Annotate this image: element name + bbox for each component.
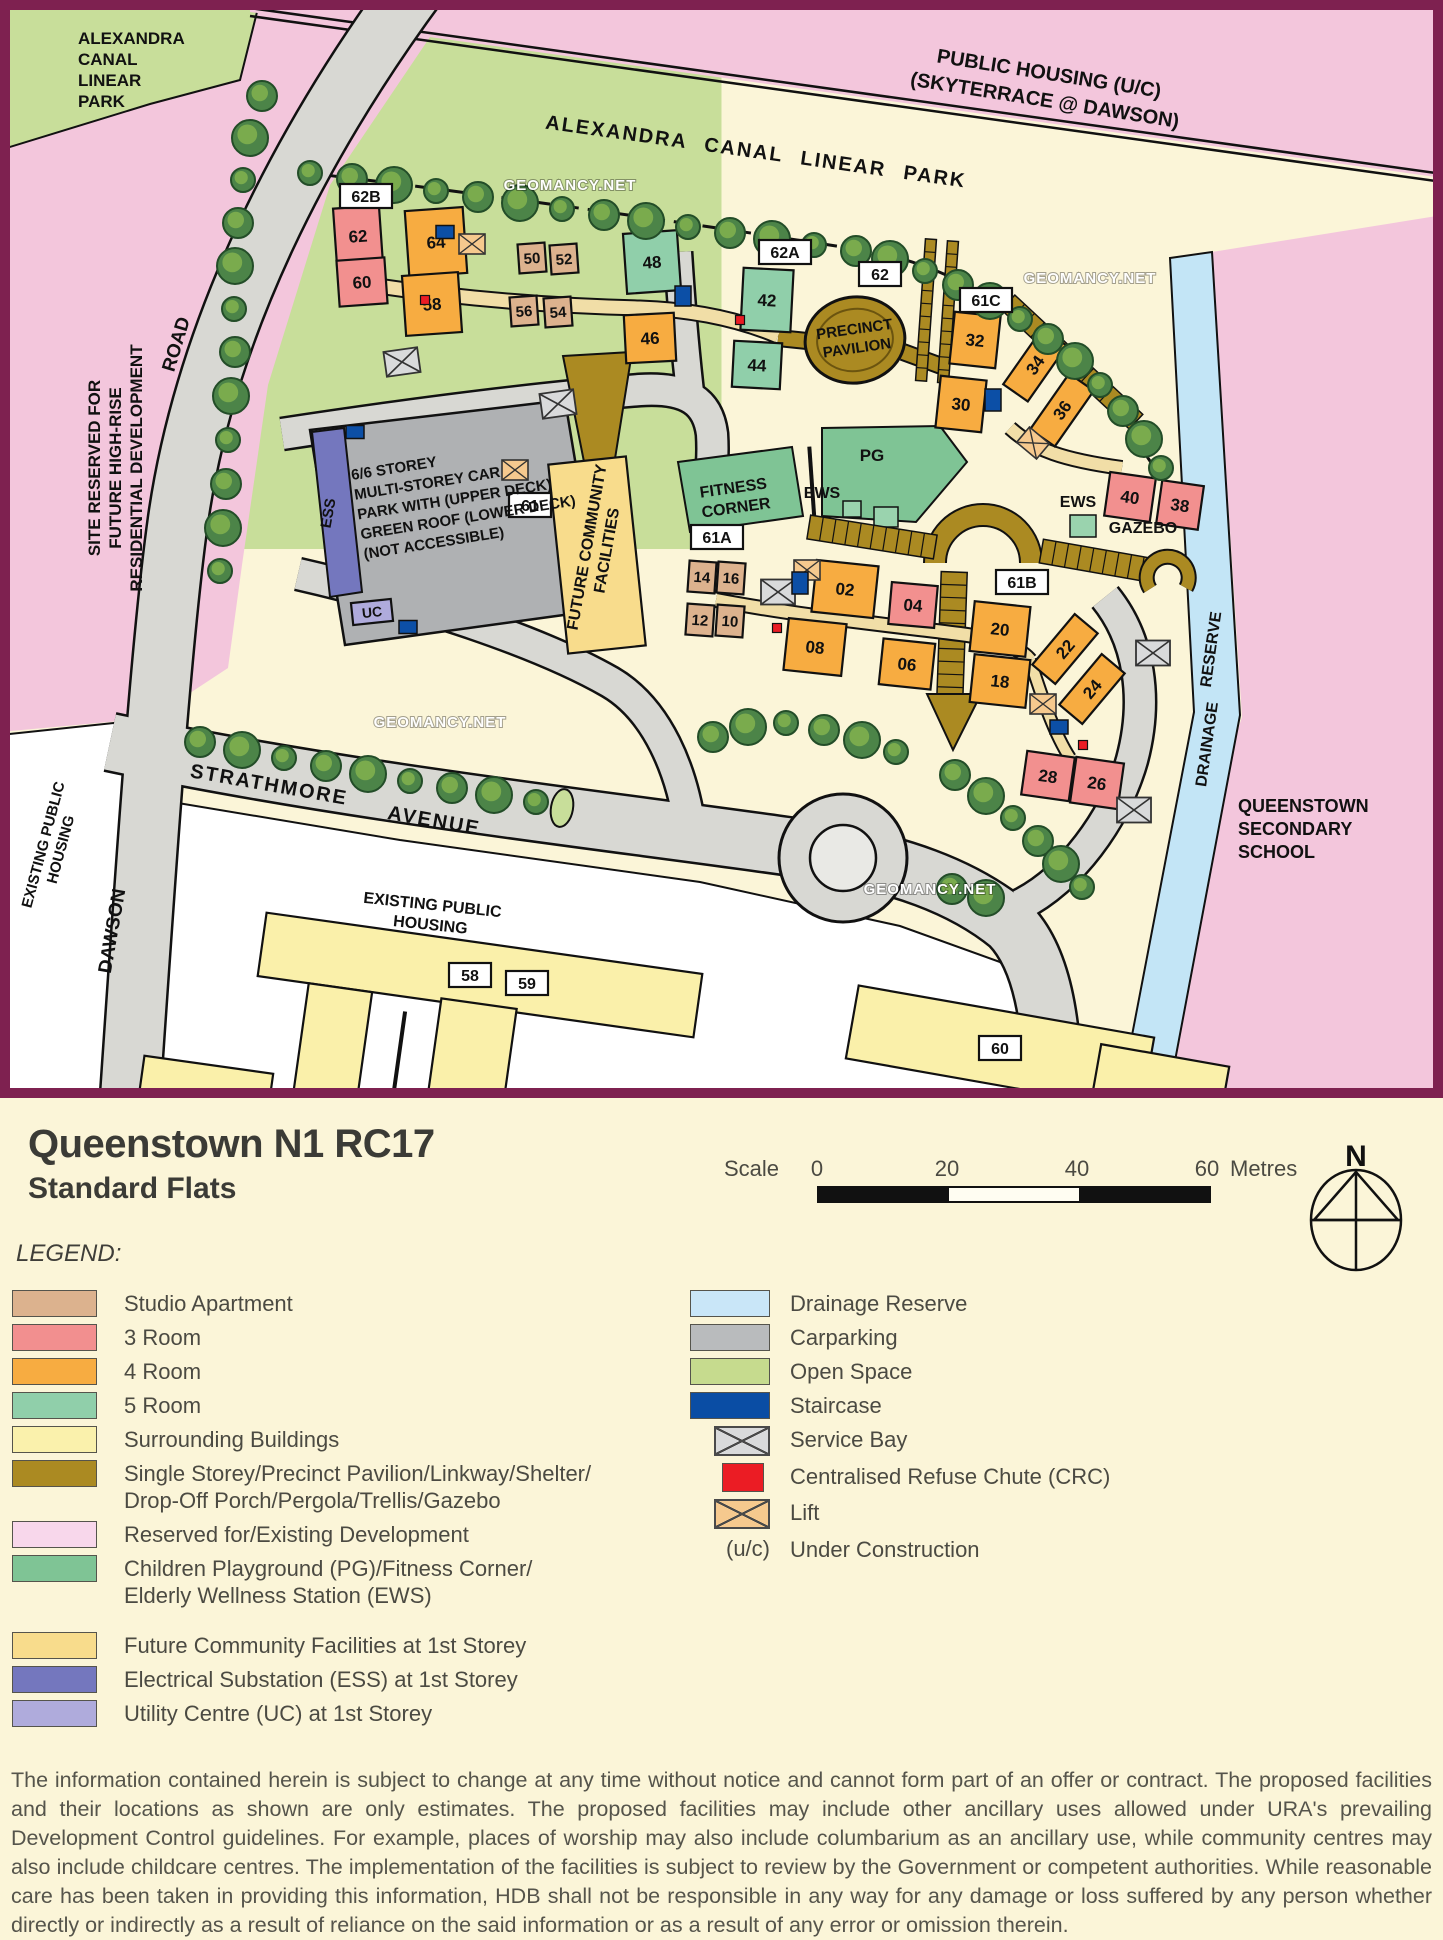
tree-icon <box>232 120 268 156</box>
tree-icon <box>715 218 745 248</box>
tree-icon <box>298 161 322 185</box>
label-box-60: 60 <box>979 1036 1021 1060</box>
block-label: 08 <box>805 637 826 658</box>
tree-icon <box>216 428 240 452</box>
tree-icon <box>217 248 253 284</box>
tree-icon <box>940 760 970 790</box>
tree-icon <box>1149 456 1173 480</box>
tree-icon <box>774 711 798 735</box>
map-text: EWS <box>1060 494 1097 511</box>
tree-inner <box>1005 809 1018 822</box>
tree-inner <box>888 743 901 756</box>
block-42: 42 <box>740 268 793 333</box>
label-box-text: 62 <box>871 267 889 284</box>
tree-icon <box>213 378 249 414</box>
block-30: 30 <box>935 376 986 433</box>
legend-item: Studio Apartment <box>12 1290 612 1317</box>
block-label: 06 <box>897 654 918 675</box>
label-box-text: 58 <box>461 968 479 985</box>
tree-inner <box>402 772 415 785</box>
watermark-text: GEOMANCY.NET <box>1024 270 1157 287</box>
legend-item: Reserved for/Existing Development <box>12 1521 612 1548</box>
tree-inner <box>594 204 611 221</box>
tree-icon <box>211 469 241 499</box>
tree-inner <box>222 253 242 273</box>
block-label: 18 <box>990 671 1011 692</box>
block-label: 30 <box>951 394 972 415</box>
block-04: 04 <box>888 582 937 628</box>
block-14: 14 <box>687 561 716 594</box>
tree-inner <box>225 341 242 358</box>
scale-tick: 60 <box>1195 1156 1219 1182</box>
legend-swatch <box>12 1392 97 1419</box>
staircase-icon <box>346 426 364 439</box>
legend-item: 4 Room <box>12 1358 612 1385</box>
block-label: 52 <box>555 251 573 269</box>
tree-icon <box>628 203 664 239</box>
tree-icon <box>676 215 700 239</box>
legend-swatch <box>12 1700 97 1727</box>
label-box-62A: 62A <box>759 240 811 264</box>
block-label: 10 <box>721 613 739 631</box>
block-label: UC <box>361 603 383 621</box>
block-48: 48 <box>623 230 681 294</box>
north-arrow-icon: N <box>1300 1136 1412 1276</box>
legend-swatch <box>690 1392 770 1419</box>
tree-icon <box>1070 875 1094 899</box>
tree-inner <box>216 473 233 490</box>
rung <box>943 305 954 306</box>
scale-label: Scale <box>724 1156 779 1182</box>
block-60: 60 <box>336 257 387 306</box>
legend-label: Centralised Refuse Chute (CRC) <box>790 1463 1110 1490</box>
legend-item: Carparking <box>690 1324 1390 1351</box>
tree-inner <box>468 186 485 203</box>
rung <box>939 357 950 358</box>
legend-swatch <box>690 1358 770 1385</box>
ews-label: EWS <box>804 485 841 502</box>
block-label: 48 <box>642 252 662 272</box>
legend-item: Utility Centre (UC) at 1st Storey <box>12 1700 612 1727</box>
scale-bar <box>817 1186 1211 1203</box>
legend-swatch <box>690 1324 770 1351</box>
tree-icon <box>524 790 548 814</box>
tree-icon <box>208 559 232 583</box>
tree-inner <box>210 515 230 535</box>
north-label: N <box>1345 1140 1367 1173</box>
tree-inner <box>680 218 693 231</box>
tree-inner <box>481 782 501 802</box>
site-plan-map: UC62646058505256544846424432303436403802… <box>0 0 1443 1098</box>
legend-swatch <box>12 1666 97 1693</box>
tree-inner <box>735 714 755 734</box>
map-text: PG <box>860 446 885 465</box>
legend-item: 5 Room <box>12 1392 612 1419</box>
tree-icon <box>1033 324 1063 354</box>
block-label: 42 <box>757 291 777 311</box>
rung <box>917 355 928 356</box>
ews-area <box>874 507 898 527</box>
tree-inner <box>237 125 257 145</box>
block-label: 44 <box>747 356 767 376</box>
tree-icon <box>424 179 448 203</box>
staircase-icon <box>1050 720 1068 734</box>
block-64: 64 <box>405 207 467 277</box>
tree-inner <box>917 262 930 275</box>
tree-inner <box>846 240 863 257</box>
label-box-text: 61A <box>702 530 732 547</box>
watermark-text: GEOMANCY.NET <box>504 177 637 194</box>
label-box-text: 59 <box>518 976 536 993</box>
tree-inner <box>973 783 993 803</box>
tree-inner <box>226 300 239 313</box>
service-bay-icon <box>539 389 576 418</box>
legend-item: Open Space <box>690 1358 1390 1385</box>
legend-label: Single Storey/Precinct Pavilion/Linkway/… <box>124 1460 591 1514</box>
legend-label: Children Playground (PG)/Fitness Corner/… <box>124 1555 532 1609</box>
scale-tick: 40 <box>1065 1156 1089 1182</box>
tree-icon <box>1043 846 1079 882</box>
legend-item: Lift <box>690 1499 1390 1529</box>
legend-item: Staircase <box>690 1392 1390 1419</box>
scale-segment <box>819 1188 949 1201</box>
block-06: 06 <box>879 638 936 689</box>
page-subtitle: Standard Flats <box>28 1172 236 1206</box>
legend-label: Surrounding Buildings <box>124 1426 339 1453</box>
staircase-icon <box>792 572 808 594</box>
block-12: 12 <box>685 604 714 637</box>
rung <box>922 290 933 291</box>
block-16: 16 <box>716 562 745 595</box>
tree-inner <box>1153 459 1166 472</box>
legend-label: 3 Room <box>124 1324 201 1351</box>
legend-swatch <box>12 1460 97 1487</box>
label-box-text: 61C <box>971 293 1001 310</box>
rung <box>942 318 953 319</box>
ews-label: EWS <box>1060 494 1097 511</box>
legend-item: (u/c)Under Construction <box>690 1536 1390 1563</box>
rung <box>925 252 936 253</box>
tree-inner <box>1074 878 1087 891</box>
tree-inner <box>190 731 207 748</box>
rung <box>921 303 932 304</box>
tree-icon <box>222 297 246 321</box>
tree-inner <box>428 182 441 195</box>
legend-label: Utility Centre (UC) at 1st Storey <box>124 1700 432 1727</box>
legend-label: Service Bay <box>790 1426 907 1453</box>
block-28: 28 <box>1021 751 1075 801</box>
tree-icon <box>550 197 574 221</box>
block-26: 26 <box>1070 757 1124 809</box>
block-40: 40 <box>1104 472 1156 522</box>
legend-swatch <box>714 1426 770 1456</box>
tree-icon <box>1126 421 1162 457</box>
tree-inner <box>252 85 269 102</box>
rung <box>947 254 958 255</box>
block-label: 56 <box>515 303 533 321</box>
staircase-icon <box>985 389 1001 411</box>
label-box-61A: 61A <box>691 525 743 549</box>
disclaimer-text: The information contained herein is subj… <box>11 1766 1432 1940</box>
legend-swatch <box>12 1632 97 1659</box>
block-label: 14 <box>693 569 711 587</box>
legend-swatch <box>12 1521 97 1548</box>
block-label: 02 <box>835 579 856 600</box>
scale-segment <box>949 1188 1079 1201</box>
tree-icon <box>589 200 619 230</box>
scale-ticks: 0204060 <box>817 1156 1207 1182</box>
tree-inner <box>814 719 831 736</box>
tree-inner <box>229 737 249 757</box>
tree-icon <box>844 722 880 758</box>
legend-item: Surrounding Buildings <box>12 1426 612 1453</box>
legend-column-left: Studio Apartment3 Room4 Room5 RoomSurrou… <box>12 1290 612 1734</box>
block-52: 52 <box>550 244 579 275</box>
label-box-text: 60 <box>991 1041 1009 1058</box>
pg-label: PG <box>860 446 885 465</box>
legend-label: Studio Apartment <box>124 1290 293 1317</box>
block-44: 44 <box>732 341 782 389</box>
block-label: 50 <box>523 250 541 268</box>
tree-icon <box>884 740 908 764</box>
staircase-icon <box>436 226 454 239</box>
tree-inner <box>218 383 238 403</box>
block-label: 28 <box>1037 766 1058 787</box>
label-box-62: 62 <box>859 262 901 286</box>
crc-icon <box>1079 741 1088 750</box>
block-label: 26 <box>1086 773 1107 794</box>
lift-icon <box>502 460 528 480</box>
legend-uc-prefix: (u/c) <box>690 1536 770 1562</box>
block-02: 02 <box>811 560 878 618</box>
legend-swatch <box>722 1463 764 1492</box>
block-08: 08 <box>783 618 846 676</box>
label-box-text: 62B <box>351 189 380 206</box>
tree-icon <box>311 751 341 781</box>
label-box-62B: 62B <box>340 184 392 208</box>
legend-column-right: Drainage ReserveCarparkingOpen SpaceStai… <box>690 1290 1390 1570</box>
watermark-text: GEOMANCY.NET <box>864 881 997 898</box>
scale-tick: 20 <box>935 1156 959 1182</box>
tree-icon <box>1057 343 1093 379</box>
lift-icon <box>459 234 485 254</box>
tree-inner <box>276 749 289 762</box>
legend-item: Future Community Facilities at 1st Store… <box>12 1632 612 1659</box>
tree-inner <box>945 764 962 781</box>
tree-icon <box>220 337 250 367</box>
tree-icon <box>463 182 493 212</box>
scale-tick: 0 <box>811 1156 823 1182</box>
legend-label: 5 Room <box>124 1392 201 1419</box>
legend-item: Drainage Reserve <box>690 1290 1390 1317</box>
label-box-text: 62A <box>770 245 800 262</box>
tree-inner <box>1113 400 1130 417</box>
tree-inner <box>703 726 720 743</box>
label-box-61B: 61B <box>996 570 1048 594</box>
scale-unit: Metres <box>1230 1156 1297 1182</box>
legend-item: Single Storey/Precinct Pavilion/Linkway/… <box>12 1460 612 1514</box>
block-label: 12 <box>691 612 709 630</box>
legend-swatch <box>12 1324 97 1351</box>
legend-label: Carparking <box>790 1324 898 1351</box>
block-label: 40 <box>1119 487 1140 508</box>
tree-inner <box>849 727 869 747</box>
block-label: 62 <box>348 226 368 246</box>
staircase-icon <box>399 621 417 634</box>
legend-item: Centralised Refuse Chute (CRC) <box>690 1463 1390 1492</box>
crc-icon <box>421 296 430 305</box>
watermark-text: GEOMANCY.NET <box>374 714 507 731</box>
label-box-58: 58 <box>449 963 491 987</box>
tree-inner <box>355 761 375 781</box>
block-50: 50 <box>518 243 547 274</box>
legend-swatch <box>690 1290 770 1317</box>
service-bay-icon <box>761 580 795 605</box>
legend-swatch <box>12 1426 97 1453</box>
label-box-61C: 61C <box>960 288 1012 312</box>
tree-inner <box>1028 830 1045 847</box>
legend-label: Electrical Substation (ESS) at 1st Store… <box>124 1666 518 1693</box>
block-label: 04 <box>903 595 924 616</box>
tree-icon <box>231 168 255 192</box>
service-bay-icon <box>1117 798 1151 823</box>
legend-label: Reserved for/Existing Development <box>124 1521 469 1548</box>
tree-inner <box>1062 348 1082 368</box>
block-32: 32 <box>949 312 1000 369</box>
pergola-arc <box>935 515 1031 563</box>
tree-inner <box>342 168 359 185</box>
tree-inner <box>720 222 737 239</box>
crc-icon <box>773 624 782 633</box>
block-label: 38 <box>1169 495 1190 516</box>
rung <box>938 370 949 371</box>
block-58: 58 <box>402 272 462 336</box>
legend-label: Under Construction <box>790 1536 980 1563</box>
block-18: 18 <box>970 654 1031 708</box>
tree-icon <box>913 259 937 283</box>
rung <box>918 342 929 343</box>
tree-icon <box>1001 806 1025 830</box>
block-46: 46 <box>624 313 676 364</box>
tree-inner <box>1048 851 1068 871</box>
block-label: 54 <box>549 304 567 322</box>
rung <box>940 344 951 345</box>
legend-item: Service Bay <box>690 1426 1390 1456</box>
rung <box>920 316 931 317</box>
tree-inner <box>554 200 567 213</box>
staircase-icon <box>675 286 691 306</box>
block-UC: UC <box>351 599 393 625</box>
tree-inner <box>235 171 248 184</box>
legend-item: 3 Room <box>12 1324 612 1351</box>
tree-inner <box>1012 310 1025 323</box>
block-label: 32 <box>965 330 986 351</box>
site-plan-svg: UC62646058505256544846424432303436403802… <box>0 0 1443 1098</box>
tree-icon <box>350 756 386 792</box>
gazebo-label: GAZEBO <box>1109 520 1177 537</box>
ews-area <box>843 501 861 517</box>
service-bay-icon <box>383 347 420 376</box>
legend-swatch <box>714 1499 770 1529</box>
tree-icon <box>730 709 766 745</box>
map-text: EWS <box>804 485 841 502</box>
legend-swatch <box>12 1290 97 1317</box>
tree-inner <box>220 431 233 444</box>
block-label: 20 <box>990 619 1011 640</box>
crc-icon <box>736 316 745 325</box>
linkway <box>778 338 807 341</box>
tree-icon <box>476 777 512 813</box>
block-label: 16 <box>722 570 740 588</box>
tree-icon <box>205 510 241 546</box>
ews-area <box>1070 515 1096 537</box>
legend-title: LEGEND: <box>16 1240 121 1268</box>
legend-label: Staircase <box>790 1392 882 1419</box>
legend-label: Future Community Facilities at 1st Store… <box>124 1632 526 1659</box>
tree-icon <box>968 778 1004 814</box>
block-label: 60 <box>352 272 372 292</box>
tree-inner <box>778 714 791 727</box>
block-10: 10 <box>715 605 744 638</box>
label-box-text: 61B <box>1007 575 1036 592</box>
tree-inner <box>442 777 459 794</box>
tree-inner <box>528 793 541 806</box>
tree-icon <box>185 727 215 757</box>
tree-icon <box>1088 373 1112 397</box>
tree-inner <box>302 164 315 177</box>
block-label: 46 <box>640 329 660 349</box>
legend-item: Electrical Substation (ESS) at 1st Store… <box>12 1666 612 1693</box>
legend-label: Drainage Reserve <box>790 1290 967 1317</box>
tree-inner <box>1038 328 1055 345</box>
block-20: 20 <box>970 601 1031 657</box>
legend-label: 4 Room <box>124 1358 201 1385</box>
legend-item: Children Playground (PG)/Fitness Corner/… <box>12 1555 612 1609</box>
lift-icon <box>1030 694 1056 714</box>
page: { "palette":{ "green":"#C8DE9A","pink":"… <box>0 0 1443 1904</box>
tree-icon <box>223 208 253 238</box>
tree-inner <box>633 208 653 228</box>
tree-icon <box>437 773 467 803</box>
tree-inner <box>228 212 245 229</box>
gazebo-structure <box>1147 557 1189 589</box>
tree-icon <box>698 722 728 752</box>
tree-icon <box>809 715 839 745</box>
tree-inner <box>1092 376 1105 389</box>
legend-swatch <box>12 1358 97 1385</box>
tree-inner <box>316 755 333 772</box>
legend-label: Lift <box>790 1499 819 1526</box>
tree-icon <box>1108 396 1138 426</box>
rung <box>919 329 930 330</box>
legend-label: Open Space <box>790 1358 912 1385</box>
block-56: 56 <box>510 296 539 327</box>
rung <box>946 267 957 268</box>
tree-inner <box>212 562 225 575</box>
tree-icon <box>398 769 422 793</box>
tree-icon <box>247 81 277 111</box>
label-box-59: 59 <box>506 971 548 995</box>
page-title: Queenstown N1 RC17 <box>28 1122 435 1167</box>
service-bay-icon <box>1136 641 1170 666</box>
rung <box>941 331 952 332</box>
map-text: GAZEBO <box>1109 520 1177 537</box>
tree-inner <box>1131 426 1151 446</box>
rung <box>916 368 927 369</box>
scale-segment <box>1079 1188 1209 1201</box>
legend-swatch <box>12 1555 97 1582</box>
block-54: 54 <box>544 297 573 328</box>
